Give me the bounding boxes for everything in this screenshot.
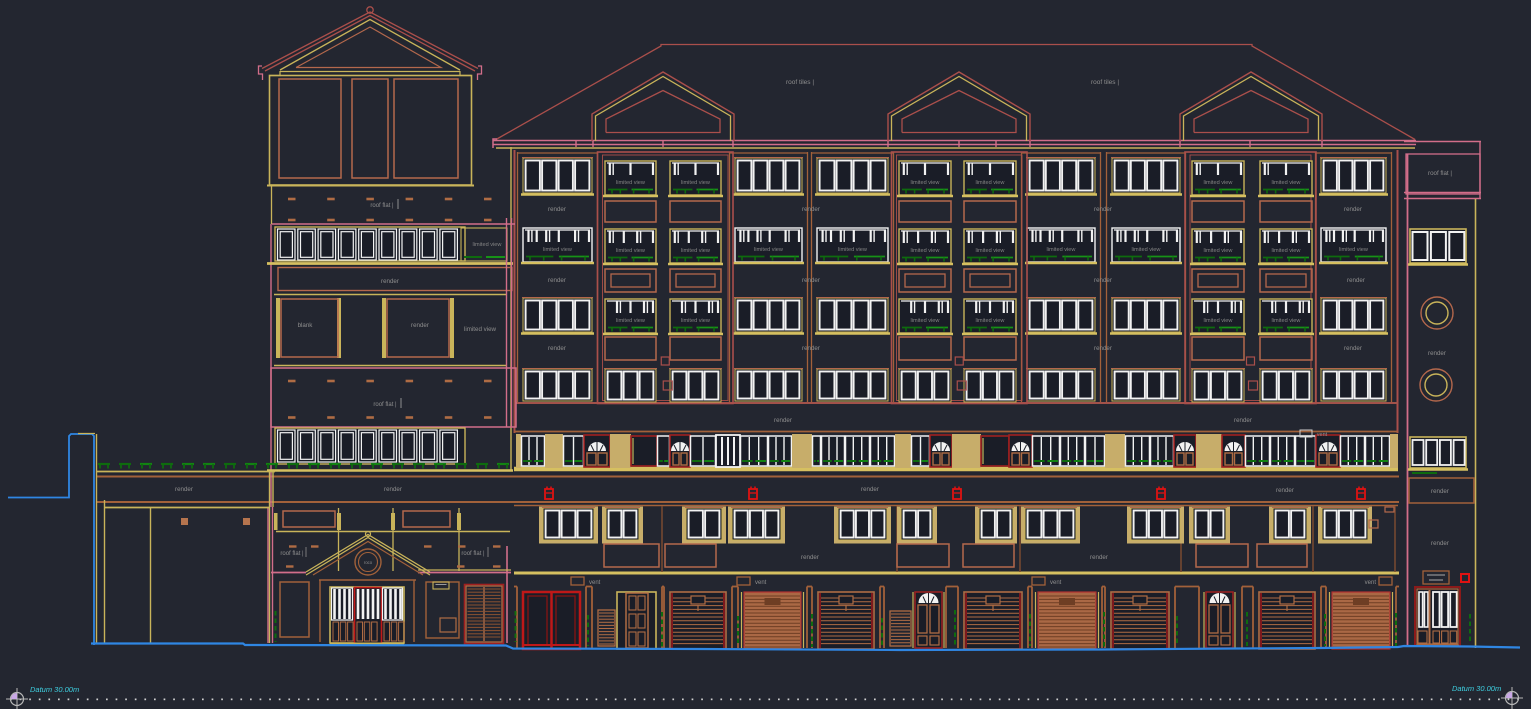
svg-text:render: render bbox=[1094, 345, 1112, 352]
svg-text:blank: blank bbox=[298, 322, 314, 329]
svg-text:render: render bbox=[1344, 345, 1362, 352]
svg-text:vent: vent bbox=[755, 580, 767, 586]
svg-text:roof flat |: roof flat | bbox=[280, 551, 304, 557]
svg-text:render: render bbox=[1094, 277, 1112, 284]
svg-text:vent: vent bbox=[1365, 580, 1377, 586]
svg-text:limited view: limited view bbox=[616, 180, 646, 186]
svg-text:limited view: limited view bbox=[911, 318, 941, 324]
svg-text:render: render bbox=[802, 277, 820, 284]
svg-text:limited view: limited view bbox=[616, 248, 646, 254]
svg-text:limited view: limited view bbox=[1272, 180, 1302, 186]
svg-text:limited view: limited view bbox=[1204, 318, 1234, 324]
svg-text:render: render bbox=[1234, 417, 1252, 424]
svg-text:render: render bbox=[548, 206, 566, 213]
svg-text:limited view: limited view bbox=[1272, 248, 1302, 254]
svg-text:roco: roco bbox=[364, 560, 373, 565]
svg-text:limited view: limited view bbox=[976, 180, 1006, 186]
svg-text:render: render bbox=[1431, 488, 1449, 495]
svg-text:limited view: limited view bbox=[681, 180, 711, 186]
svg-text:vent: vent bbox=[589, 580, 601, 586]
svg-text:limited view: limited view bbox=[681, 248, 711, 254]
svg-text:render: render bbox=[548, 277, 566, 284]
svg-text:render: render bbox=[1276, 487, 1294, 494]
svg-text:limited view: limited view bbox=[1204, 180, 1234, 186]
svg-text:render: render bbox=[411, 322, 429, 329]
svg-text:vent: vent bbox=[1050, 580, 1062, 586]
svg-text:roof flat |: roof flat | bbox=[370, 203, 394, 209]
svg-text:render: render bbox=[384, 486, 402, 493]
svg-text:limited view: limited view bbox=[473, 242, 503, 248]
svg-text:limited view: limited view bbox=[838, 247, 868, 253]
svg-text:roof tiles |: roof tiles | bbox=[786, 79, 814, 86]
svg-text:limited view: limited view bbox=[1204, 248, 1234, 254]
svg-text:limited view: limited view bbox=[1272, 318, 1302, 324]
svg-text:render: render bbox=[381, 278, 399, 285]
svg-text:limited view: limited view bbox=[976, 248, 1006, 254]
svg-text:render: render bbox=[774, 417, 792, 424]
svg-text:render: render bbox=[1344, 206, 1362, 213]
svg-text:render: render bbox=[801, 554, 819, 561]
svg-text:limited view: limited view bbox=[681, 318, 711, 324]
svg-text:roof flat |: roof flat | bbox=[373, 402, 397, 408]
svg-text:render: render bbox=[1431, 540, 1449, 547]
svg-text:roof flat |: roof flat | bbox=[461, 551, 485, 557]
svg-text:limited view: limited view bbox=[911, 180, 941, 186]
svg-text:limited view: limited view bbox=[1339, 247, 1369, 253]
svg-text:roof flat |: roof flat | bbox=[1428, 170, 1452, 177]
svg-text:render: render bbox=[802, 206, 820, 213]
svg-text:render: render bbox=[802, 345, 820, 352]
svg-text:Datum 30.00m: Datum 30.00m bbox=[30, 685, 79, 694]
svg-text:limited view: limited view bbox=[976, 318, 1006, 324]
svg-text:limited view: limited view bbox=[543, 247, 573, 253]
svg-text:vent: vent bbox=[1317, 432, 1328, 438]
svg-text:Datum 30.00m: Datum 30.00m bbox=[1452, 684, 1501, 693]
svg-text:render: render bbox=[1090, 554, 1108, 561]
svg-text:roof tiles |: roof tiles | bbox=[1091, 79, 1119, 86]
svg-text:limited view: limited view bbox=[754, 247, 784, 253]
svg-text:render: render bbox=[1428, 350, 1446, 357]
svg-text:render: render bbox=[861, 486, 879, 493]
svg-text:limited view: limited view bbox=[911, 248, 941, 254]
svg-text:limited view: limited view bbox=[464, 326, 497, 333]
svg-text:render: render bbox=[1094, 206, 1112, 213]
svg-text:render: render bbox=[548, 345, 566, 352]
svg-text:limited view: limited view bbox=[1132, 247, 1162, 253]
svg-text:render: render bbox=[175, 486, 193, 493]
svg-text:limited view: limited view bbox=[616, 318, 646, 324]
svg-text:limited view: limited view bbox=[1047, 247, 1077, 253]
svg-text:render: render bbox=[1347, 277, 1365, 284]
